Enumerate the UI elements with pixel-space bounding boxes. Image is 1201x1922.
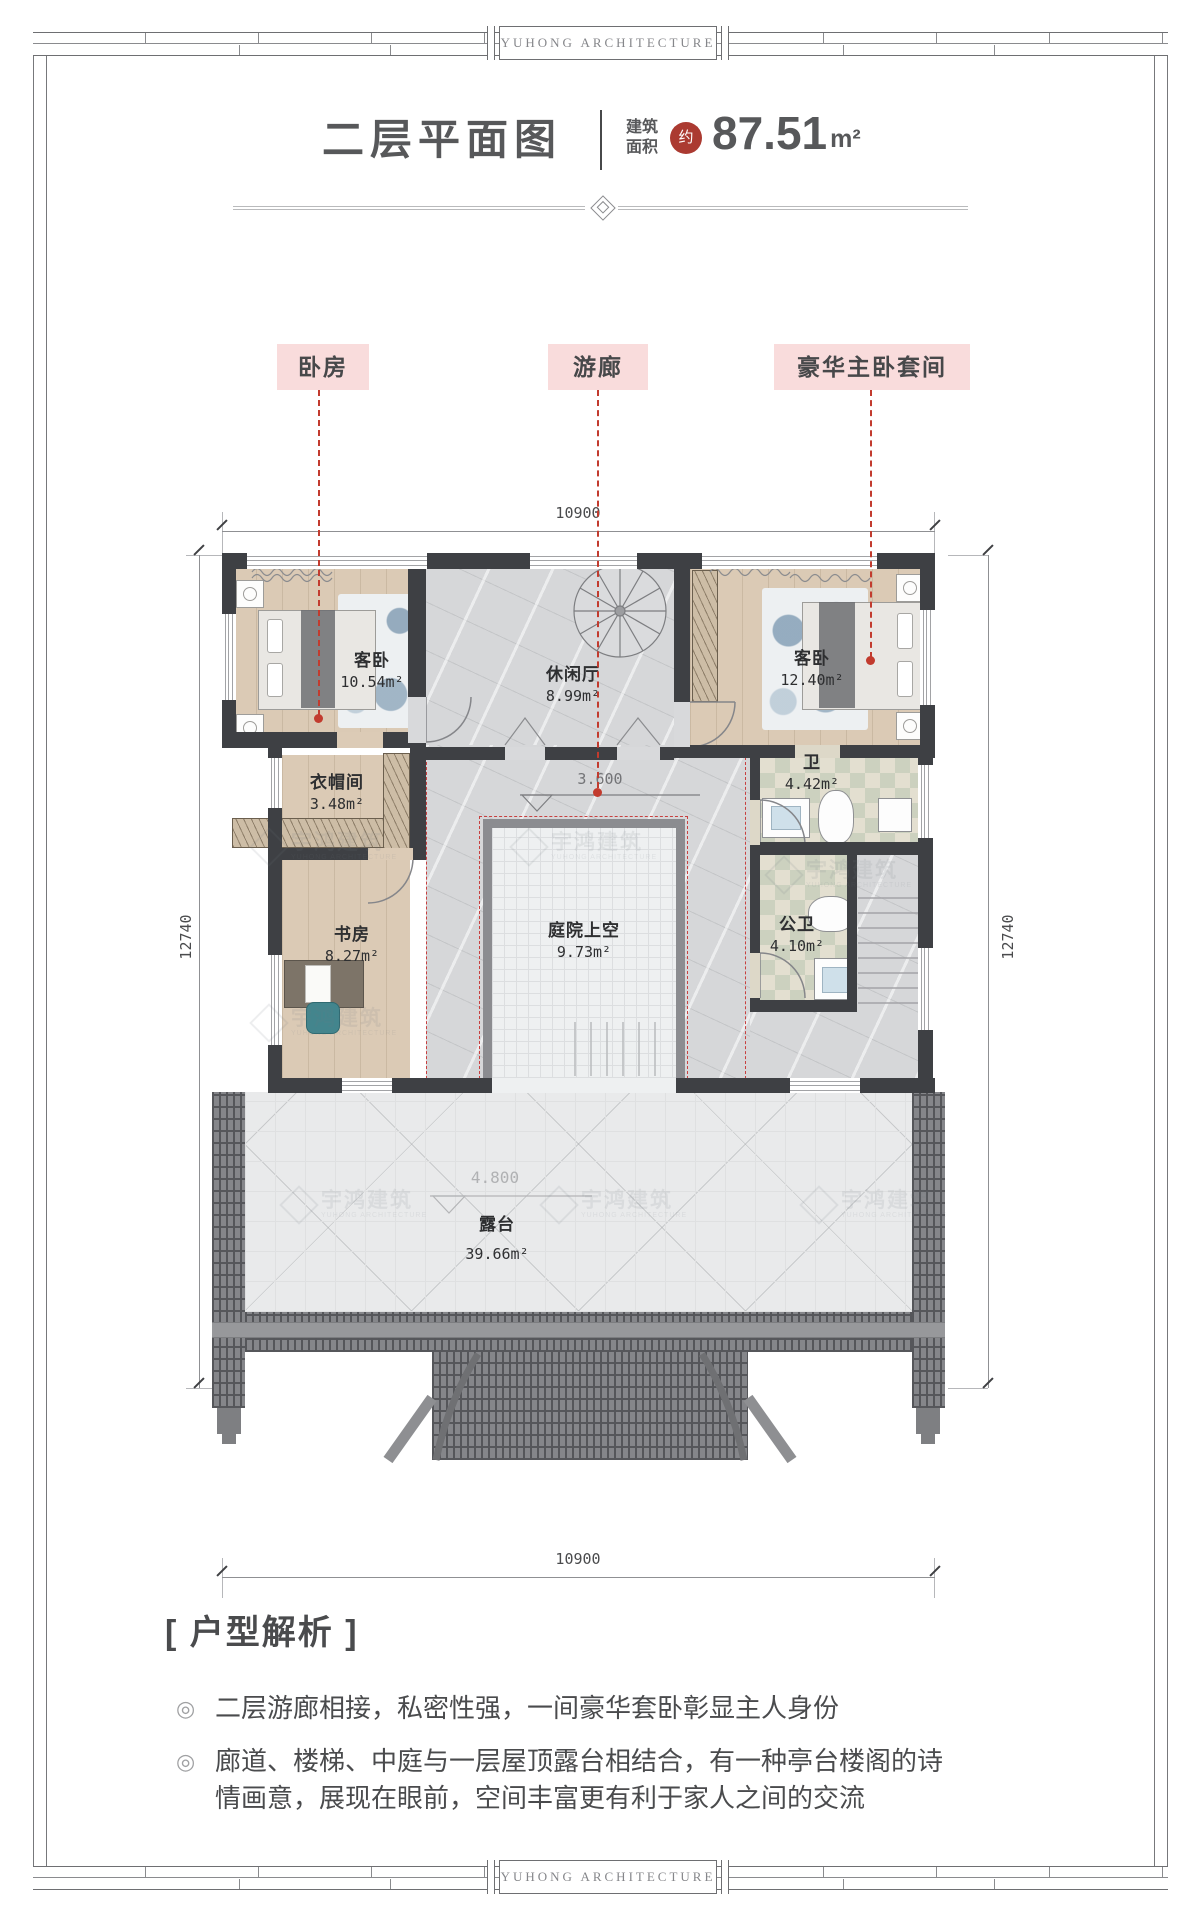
- area-label-line2: 面积: [626, 139, 658, 156]
- callout-leader-gallery: [597, 390, 599, 788]
- roof-fascia: [212, 1322, 945, 1338]
- window-north-bedroom1: [247, 553, 427, 569]
- dim-ext: [934, 512, 935, 553]
- footer-brand-flank-left: [487, 1860, 495, 1894]
- room-label-courtyard: 庭院上空 9.73m²: [504, 920, 664, 962]
- sink-bath1: [762, 798, 810, 838]
- callout-bedroom: 卧房: [277, 344, 369, 390]
- dim-bottom: 10900: [518, 1550, 638, 1568]
- dim-ext: [948, 1388, 988, 1389]
- analysis-bullet-2: 廊道、楼梯、中庭与一层屋顶露台相结合，有一种亭台楼阁的诗情画意，展现在眼前，空间…: [215, 1743, 950, 1817]
- wall-bedroom1-south: [222, 732, 426, 748]
- opening-courtyard-steps: [492, 1078, 676, 1093]
- nightstand: [236, 580, 264, 608]
- dim-ext: [222, 1558, 223, 1598]
- area-value-number: 87.51: [712, 110, 827, 156]
- dim-line-right: [988, 555, 989, 1388]
- frame-left-outer: [33, 55, 34, 1867]
- pillow: [897, 661, 913, 697]
- window-south-study: [342, 1078, 392, 1093]
- room-label-bedroom1: 客卧 10.54m²: [302, 650, 442, 692]
- callout-leader-master: [870, 390, 872, 658]
- roof-post-left: [217, 1408, 241, 1434]
- ornament-diamond: [590, 195, 615, 220]
- desk-paper: [305, 965, 331, 1003]
- dim-tick: [193, 544, 204, 555]
- callout-master-suite: 豪华主卧套间: [774, 344, 970, 390]
- watermark-logo-icon: [799, 1185, 839, 1225]
- wall-bath2-south: [750, 1000, 857, 1012]
- dim-line-top: [222, 531, 935, 532]
- wall-bath-divider: [750, 842, 918, 855]
- callout-dot-gallery: [593, 788, 602, 797]
- watermark-logo-icon: [279, 1185, 319, 1225]
- dim-line-left: [199, 555, 200, 1388]
- pillow: [267, 663, 283, 697]
- dim-tick: [929, 519, 940, 530]
- door-opening-bedroom1: [408, 697, 426, 743]
- area-label-line1: 建筑: [626, 119, 658, 136]
- ornament-line-right2: [618, 209, 968, 210]
- porch-roof: [432, 1352, 748, 1460]
- room-label-lounge: 休闲厅 8.99m²: [503, 664, 643, 706]
- dim-tick: [982, 544, 993, 555]
- dim-ext: [186, 555, 226, 556]
- watermark: 宇鸿建筑YUHONG ARCHITECTURE: [255, 1008, 397, 1037]
- bullet-marker: ◎: [176, 1696, 195, 1722]
- door-opening-cloakroom: [337, 732, 383, 748]
- level-gallery: 3.600: [545, 770, 655, 788]
- dim-tick: [929, 1565, 940, 1576]
- header-brand-flank-left: [487, 26, 495, 60]
- watermark: 宇鸿建筑YUHONG ARCHITECTURE: [545, 1190, 687, 1219]
- room-label-cloakroom: 衣帽间 3.48m²: [267, 772, 407, 814]
- frame-left-inner: [46, 55, 47, 1867]
- ornament-line-right: [618, 206, 968, 207]
- sink-basin: [822, 967, 848, 993]
- dim-ext: [934, 1558, 935, 1598]
- watermark: 宇鸿建筑YUHONG ARCHITECTURE: [255, 832, 397, 861]
- pillow: [897, 613, 913, 649]
- footer-brand: YUHONG ARCHITECTURE: [499, 1860, 717, 1894]
- window-north-lounge: [530, 553, 637, 569]
- window-east-bath1: [918, 765, 933, 838]
- courtyard-wall-top: [483, 819, 685, 828]
- callout-leader-bedroom: [318, 390, 320, 716]
- watermark: 宇鸿建筑YUHONG ARCHITECTURE: [805, 1190, 947, 1219]
- header-brand-flank-right: [721, 26, 729, 60]
- dim-right: 12740: [999, 907, 1017, 967]
- roof-post-foot-right: [921, 1434, 935, 1444]
- frame-right-inner: [1154, 55, 1155, 1867]
- ornament-line-left: [233, 206, 585, 207]
- floorplan-sheet: YUHONG ARCHITECTURE 二层平面图 建筑 面积 约 87.51 …: [0, 0, 1201, 1922]
- door-opening-bedroom2: [674, 702, 690, 747]
- header-brand: YUHONG ARCHITECTURE: [499, 26, 717, 60]
- dim-line-bottom: [222, 1577, 935, 1578]
- opening-lounge-left: [505, 747, 545, 760]
- roof-strip-right: [912, 1092, 945, 1408]
- floor-lounge: [426, 563, 674, 748]
- callout-dot-bedroom: [314, 714, 323, 723]
- door-opening-bath1: [750, 800, 760, 845]
- window-north-bedroom2: [702, 553, 877, 569]
- room-label-study: 书房 8.27m²: [282, 924, 422, 966]
- page-title: 二层平面图: [322, 106, 562, 167]
- footer-brand-flank-right: [721, 1860, 729, 1894]
- callout-gallery: 游廊: [548, 344, 648, 390]
- area-value: 87.51 m²: [712, 110, 861, 156]
- room-label-bath1: 卫 4.42m²: [742, 752, 882, 794]
- desk-study: [284, 960, 364, 1008]
- roof-strip-left: [212, 1092, 245, 1408]
- wardrobe-bedroom2: [692, 570, 718, 702]
- roof-post-foot-left: [222, 1434, 236, 1444]
- sink-basin: [771, 806, 801, 830]
- window-east-bedroom2: [920, 610, 935, 705]
- window-east-stairs: [918, 948, 933, 1030]
- room-label-bath2: 公卫 4.10m²: [727, 914, 867, 956]
- opening-lounge-right: [617, 747, 660, 760]
- analysis-title: [ 户型解析 ]: [165, 1605, 359, 1654]
- level-terrace: 4.800: [440, 1168, 550, 1187]
- courtyard-wall-left: [483, 819, 492, 1078]
- frame-right-outer: [1167, 55, 1168, 1867]
- area-value-unit: m²: [830, 122, 861, 156]
- dim-ext: [948, 555, 988, 556]
- dim-ext: [222, 512, 223, 553]
- watermark-logo-icon: [509, 827, 549, 867]
- watermark: 宇鸿建筑YUHONG ARCHITECTURE: [770, 860, 912, 889]
- dim-top: 10900: [518, 504, 638, 522]
- approx-stamp: 约: [670, 122, 702, 154]
- watermark-logo-icon: [249, 827, 289, 867]
- title-divider: [600, 110, 602, 170]
- courtyard-wall-right: [676, 819, 685, 1078]
- door-opening-bath2: [750, 953, 760, 998]
- area-label: 建筑 面积: [622, 118, 662, 158]
- roof-post-right: [916, 1408, 940, 1434]
- ornament-line-left2: [233, 209, 585, 210]
- watermark: 宇鸿建筑YUHONG ARCHITECTURE: [515, 832, 657, 861]
- dim-left: 12740: [177, 907, 195, 967]
- wall-cloakroom-right: [410, 745, 426, 860]
- window-west-bedroom1: [222, 614, 236, 700]
- toilet-bath1: [818, 790, 854, 844]
- window-south-hall: [790, 1078, 860, 1093]
- shower-bath1: [878, 798, 912, 832]
- room-label-bedroom2: 客卧 12.40m²: [742, 648, 882, 690]
- bullet-marker: ◎: [176, 1749, 195, 1775]
- analysis-bullet-1: 二层游廊相接，私密性强，一间豪华套卧彰显主人身份: [215, 1690, 945, 1727]
- room-label-terrace: 露台 39.66m²: [417, 1214, 577, 1264]
- watermark: 宇鸿建筑YUHONG ARCHITECTURE: [285, 1190, 427, 1219]
- callout-dot-master: [866, 656, 875, 665]
- pillow: [267, 619, 283, 653]
- watermark-logo-icon: [539, 1185, 579, 1225]
- watermark-logo-icon: [249, 1003, 289, 1043]
- watermark-logo-icon: [764, 855, 804, 895]
